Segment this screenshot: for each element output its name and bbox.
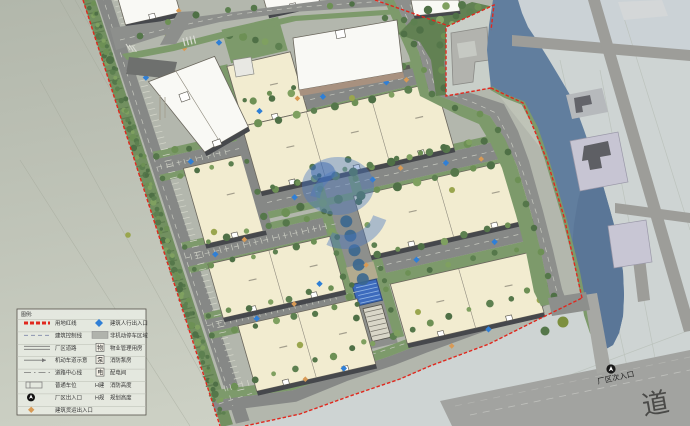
svg-text:建筑控制线: 建筑控制线 xyxy=(55,331,83,339)
svg-text:H建: H建 xyxy=(95,381,105,389)
svg-text:道路中心线: 道路中心线 xyxy=(55,369,83,377)
svg-text:物: 物 xyxy=(97,344,103,352)
svg-text:建筑货运出入口: 建筑货运出入口 xyxy=(55,406,93,414)
svg-text:消防高度: 消防高度 xyxy=(110,381,132,389)
svg-text:厂区道路: 厂区道路 xyxy=(55,344,77,352)
svg-text:配电间: 配电间 xyxy=(110,369,126,377)
svg-text:消防泵房: 消防泵房 xyxy=(110,356,132,364)
svg-text:泵: 泵 xyxy=(97,357,103,364)
svg-text:机动车道示意: 机动车道示意 xyxy=(55,356,88,364)
svg-text:非机动停车区域: 非机动停车区域 xyxy=(110,331,148,339)
svg-text:图例:: 图例: xyxy=(21,311,32,318)
svg-text:普通车位: 普通车位 xyxy=(55,381,77,389)
svg-text:电: 电 xyxy=(97,369,103,377)
svg-text:厂区出入口: 厂区出入口 xyxy=(55,393,82,401)
svg-text:道: 道 xyxy=(640,387,672,421)
svg-text:用地红线: 用地红线 xyxy=(55,319,77,327)
svg-text:H规: H规 xyxy=(95,393,105,401)
svg-text:规划高度: 规划高度 xyxy=(110,393,132,401)
svg-text:物业管理用房: 物业管理用房 xyxy=(110,344,142,352)
svg-text:建筑人行出入口: 建筑人行出入口 xyxy=(110,319,148,327)
